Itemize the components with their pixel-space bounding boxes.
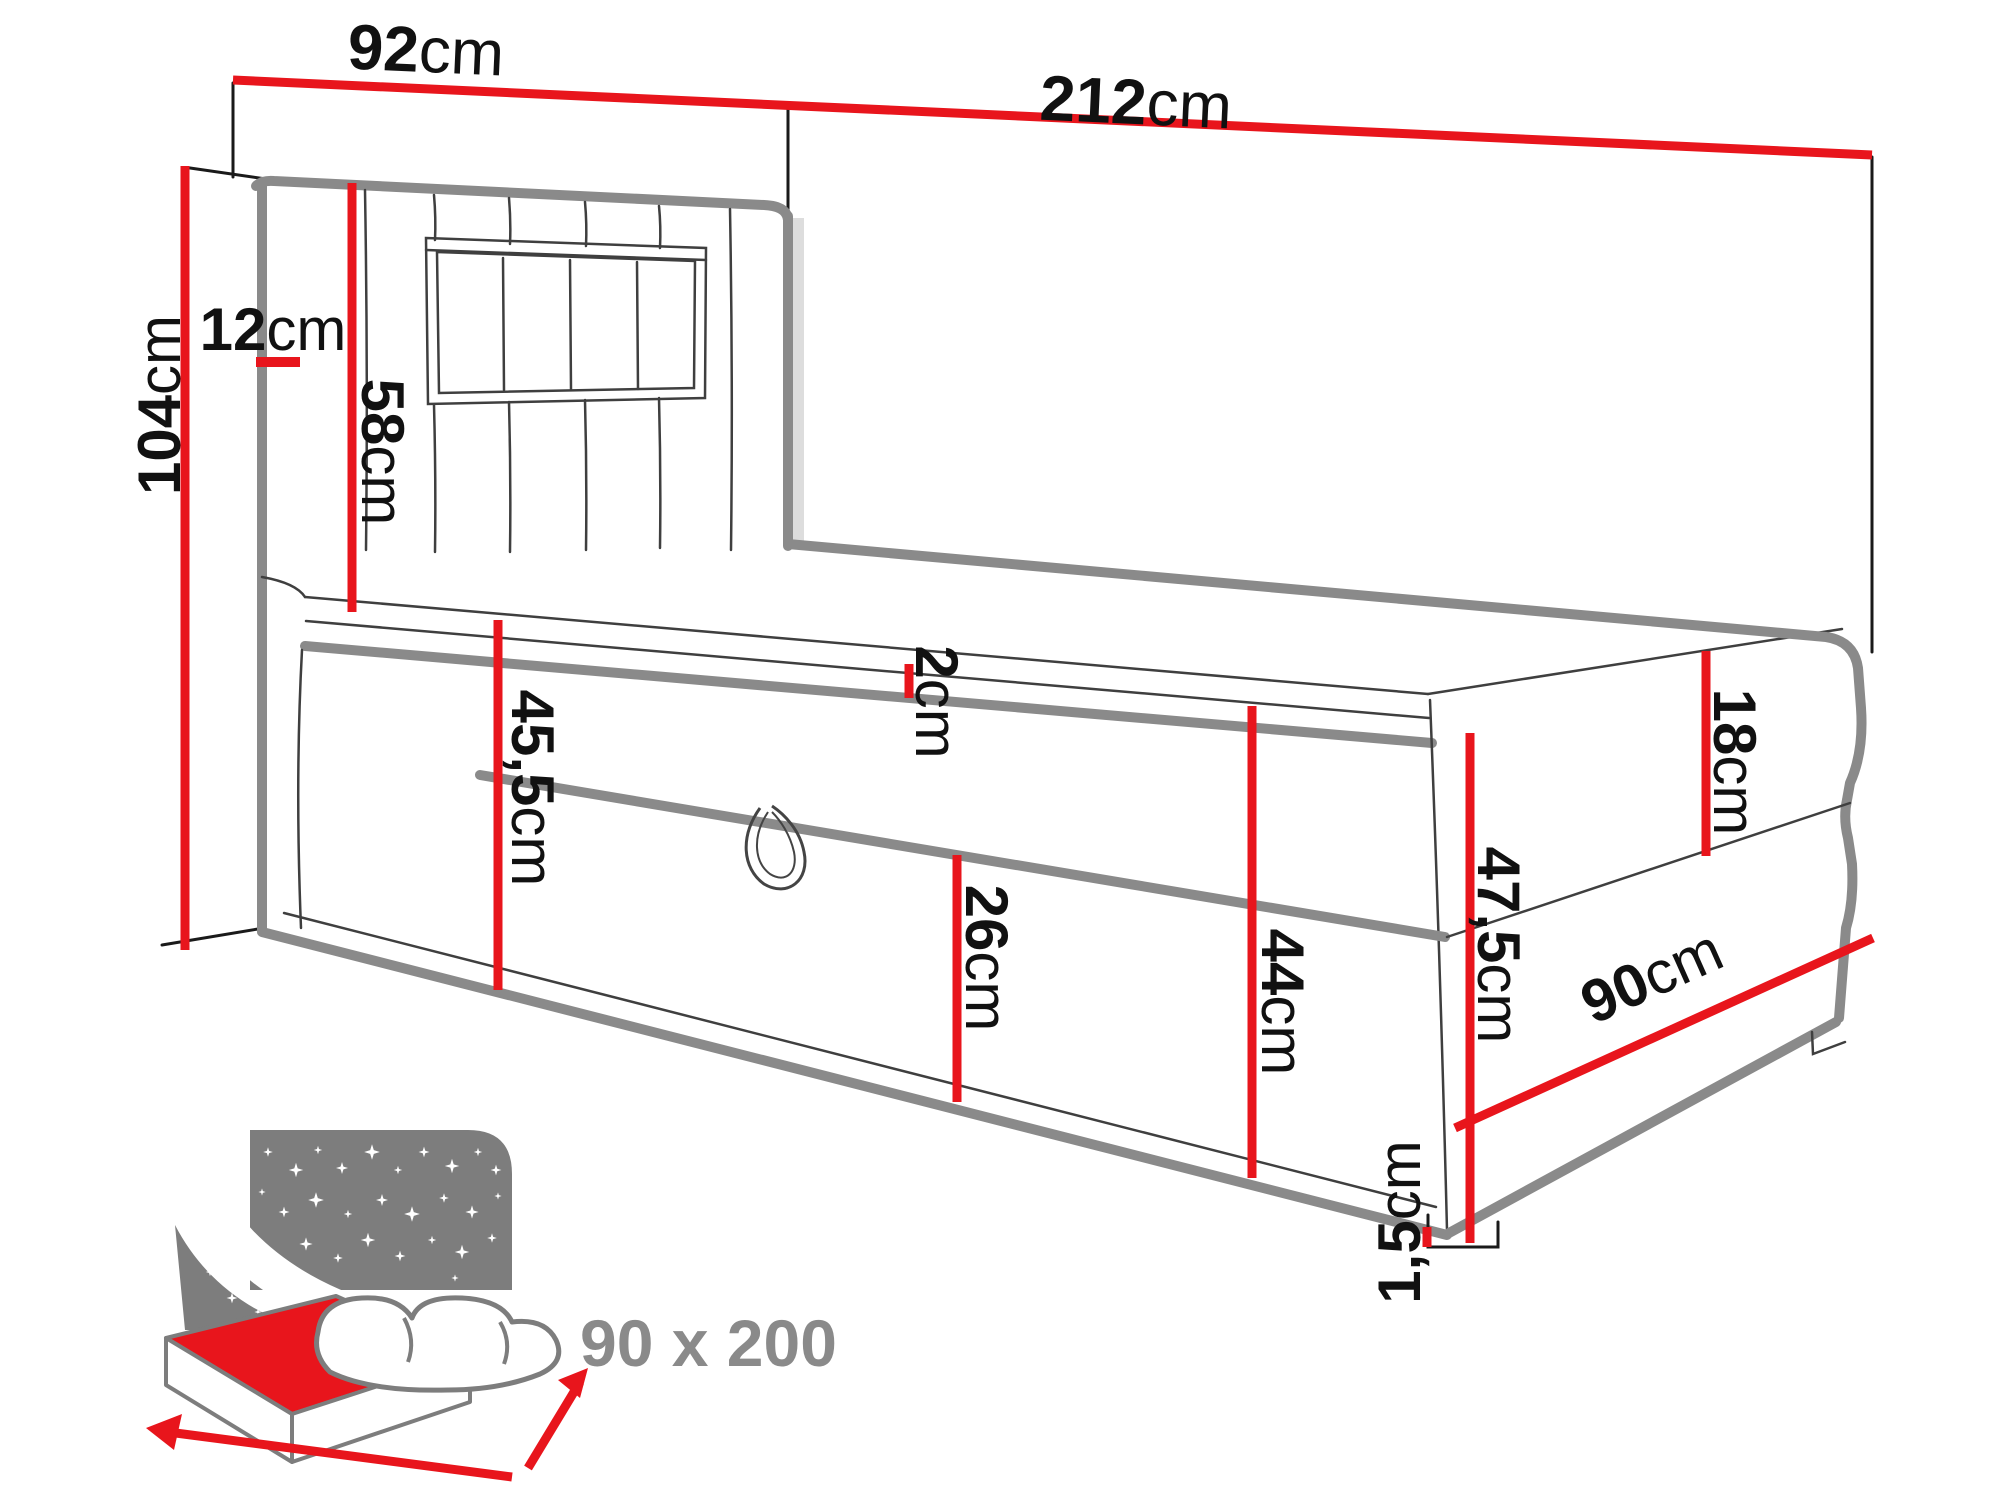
dimension-label-2cm: 2cm — [903, 645, 970, 758]
dimension-label-47-5cm: 47,5cm — [1465, 847, 1532, 1044]
wall-top-edge — [190, 168, 266, 179]
dimension-label-92cm: 92cm — [346, 11, 506, 90]
size-badge: 90 x 200 — [580, 1306, 837, 1380]
dimension-label-18cm: 18cm — [1701, 689, 1768, 836]
dimension-label-1-5cm: 1,5cm — [1366, 1140, 1433, 1303]
icon-pillows-duvet — [317, 1298, 559, 1390]
dimension-label-45-5cm: 45,5cm — [499, 690, 566, 887]
dimension-label-104cm: 104cm — [126, 315, 193, 495]
floor-line-left — [162, 928, 264, 945]
dimension-label-44cm: 44cm — [1249, 929, 1316, 1076]
bed-dimension-diagram: 92cm 212cm 104cm 12cm 58cm 45,5cm 2cm 26… — [0, 0, 2000, 1500]
bed-size-icon: 90 x 200 — [146, 1130, 837, 1477]
dimension-label-58cm: 58cm — [349, 379, 416, 526]
dimension-label-12cm: 12cm — [200, 296, 347, 363]
dimension-label-26cm: 26cm — [953, 885, 1020, 1032]
dimension-label-212cm: 212cm — [1038, 62, 1233, 143]
